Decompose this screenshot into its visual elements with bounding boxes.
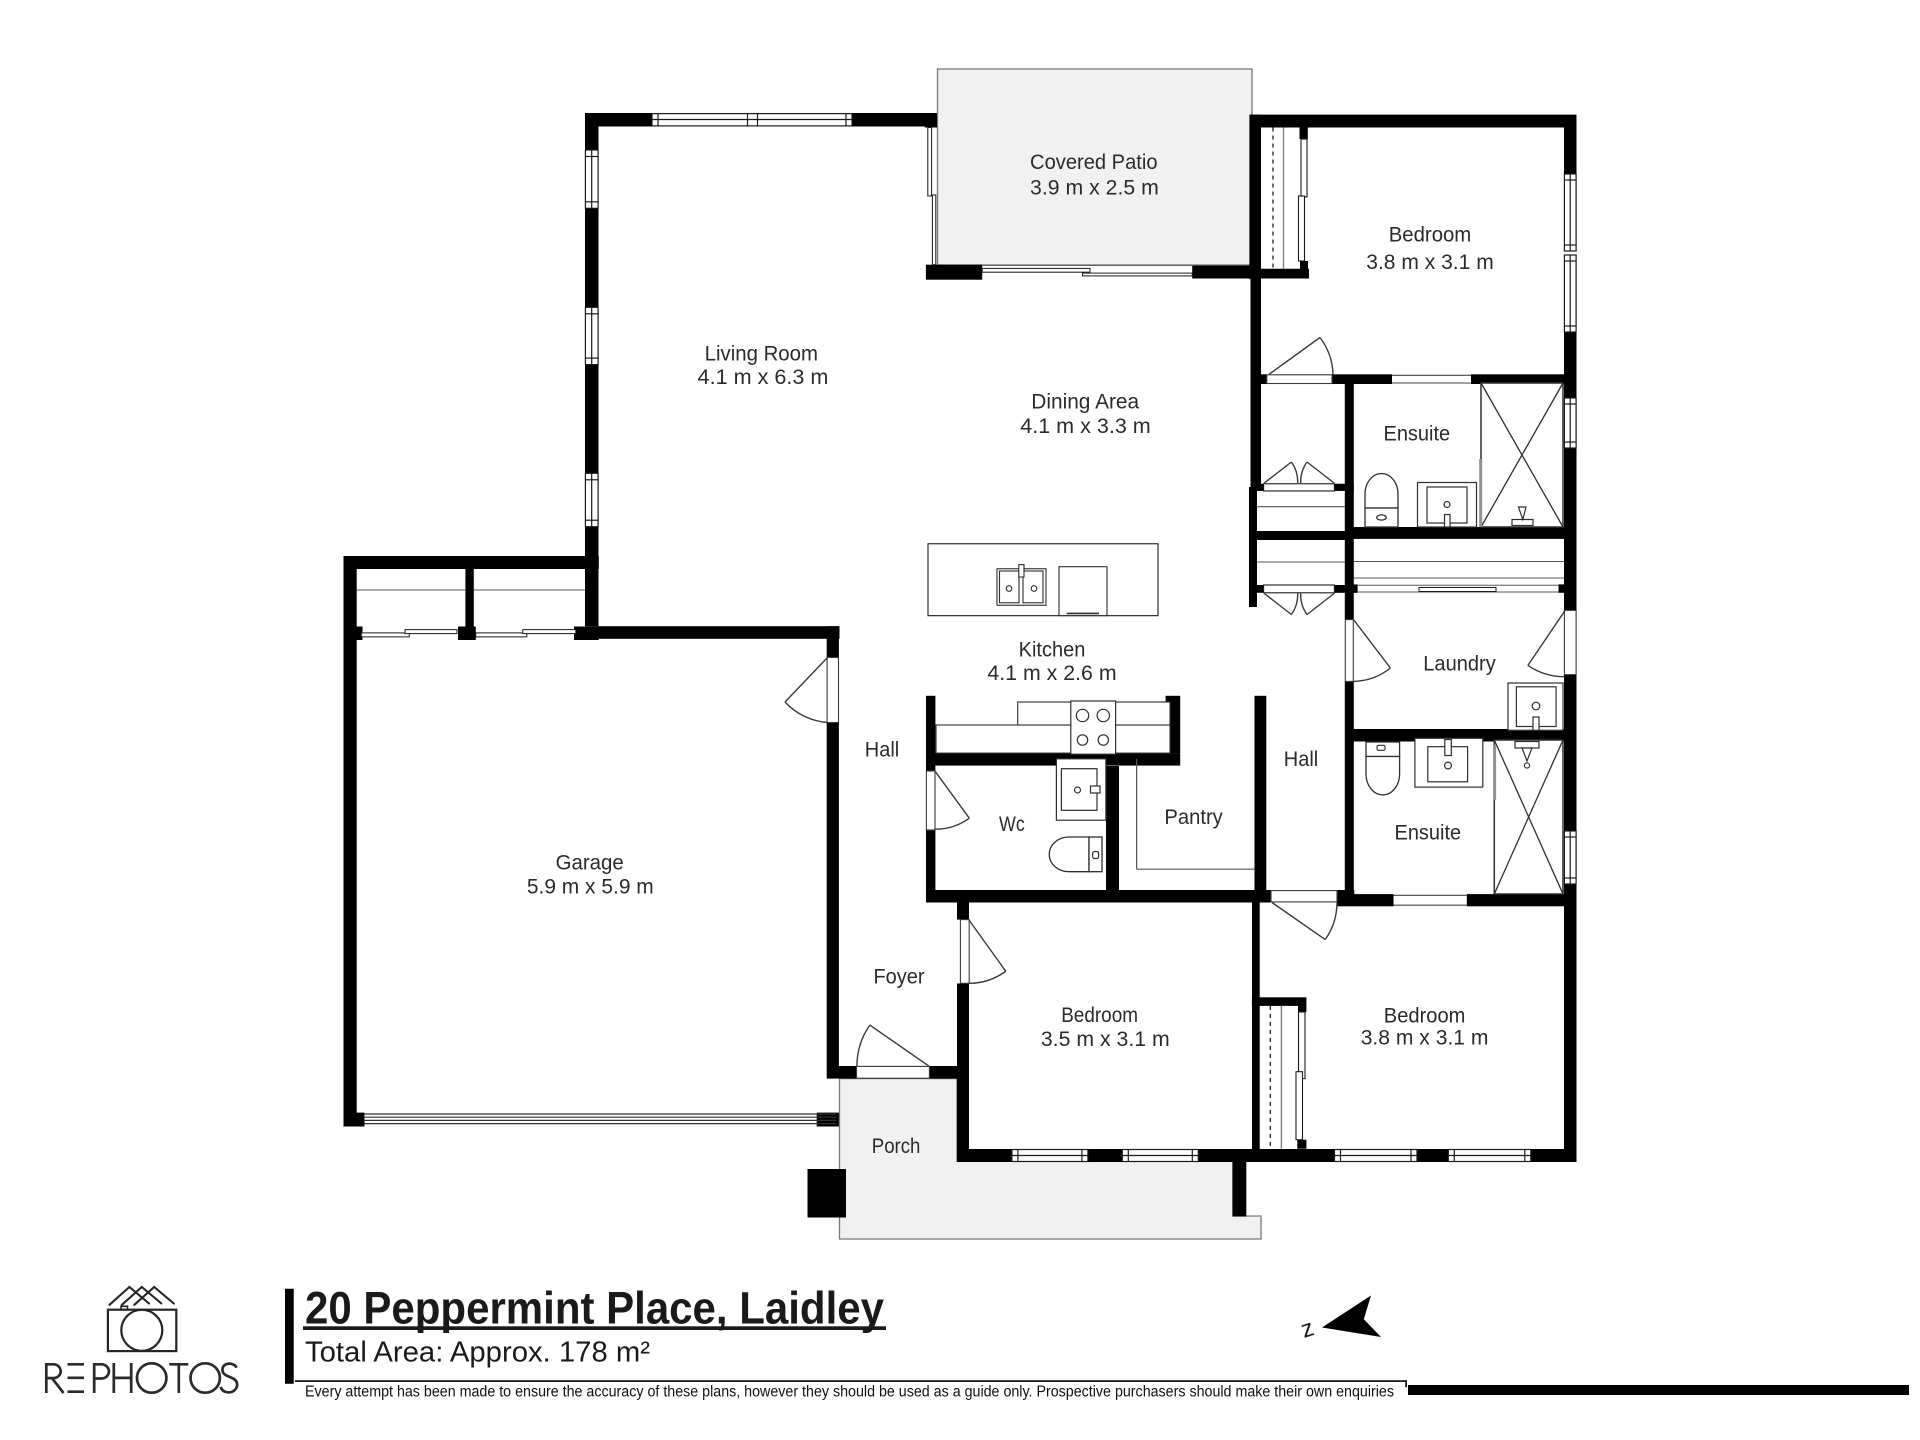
svg-text:Hall: Hall <box>1284 747 1318 771</box>
svg-text:Kitchen: Kitchen <box>1019 638 1086 662</box>
svg-text:Pantry: Pantry <box>1164 805 1223 829</box>
svg-text:Covered Patio: Covered Patio <box>1030 150 1158 174</box>
svg-text:Wc: Wc <box>999 812 1025 836</box>
svg-text:4.1 m x 2.6 m: 4.1 m x 2.6 m <box>987 661 1116 685</box>
svg-text:Every attempt has been made to: Every attempt has been made to ensure th… <box>305 1384 1394 1401</box>
svg-text:Bedroom: Bedroom <box>1061 1003 1138 1027</box>
svg-text:Ensuite: Ensuite <box>1395 821 1462 845</box>
svg-text:5.9 m x 5.9 m: 5.9 m x 5.9 m <box>527 875 654 899</box>
svg-text:Hall: Hall <box>865 738 899 762</box>
svg-text:Garage: Garage <box>556 851 624 875</box>
svg-text:Total Area: Approx. 178 m²: Total Area: Approx. 178 m² <box>305 1337 650 1369</box>
svg-text:4.1 m x 3.3 m: 4.1 m x 3.3 m <box>1020 414 1151 438</box>
svg-text:Bedroom: Bedroom <box>1384 1004 1466 1028</box>
svg-text:Ensuite: Ensuite <box>1384 422 1451 446</box>
svg-text:20 Peppermint Place, Laidley: 20 Peppermint Place, Laidley <box>305 1283 884 1334</box>
svg-text:3.8 m x 3.1 m: 3.8 m x 3.1 m <box>1366 250 1494 274</box>
svg-text:Foyer: Foyer <box>873 965 924 989</box>
svg-text:Bedroom: Bedroom <box>1389 223 1472 247</box>
svg-text:Porch: Porch <box>872 1134 921 1158</box>
svg-text:Laundry: Laundry <box>1423 651 1496 675</box>
svg-text:4.1 m x 6.3 m: 4.1 m x 6.3 m <box>698 365 829 389</box>
svg-text:3.9 m x 2.5 m: 3.9 m x 2.5 m <box>1030 176 1159 200</box>
svg-text:3.8 m x 3.1 m: 3.8 m x 3.1 m <box>1361 1026 1489 1050</box>
svg-text:Dining Area: Dining Area <box>1031 390 1139 414</box>
svg-text:3.5 m x 3.1 m: 3.5 m x 3.1 m <box>1041 1027 1170 1051</box>
svg-text:Living Room: Living Room <box>705 342 818 366</box>
